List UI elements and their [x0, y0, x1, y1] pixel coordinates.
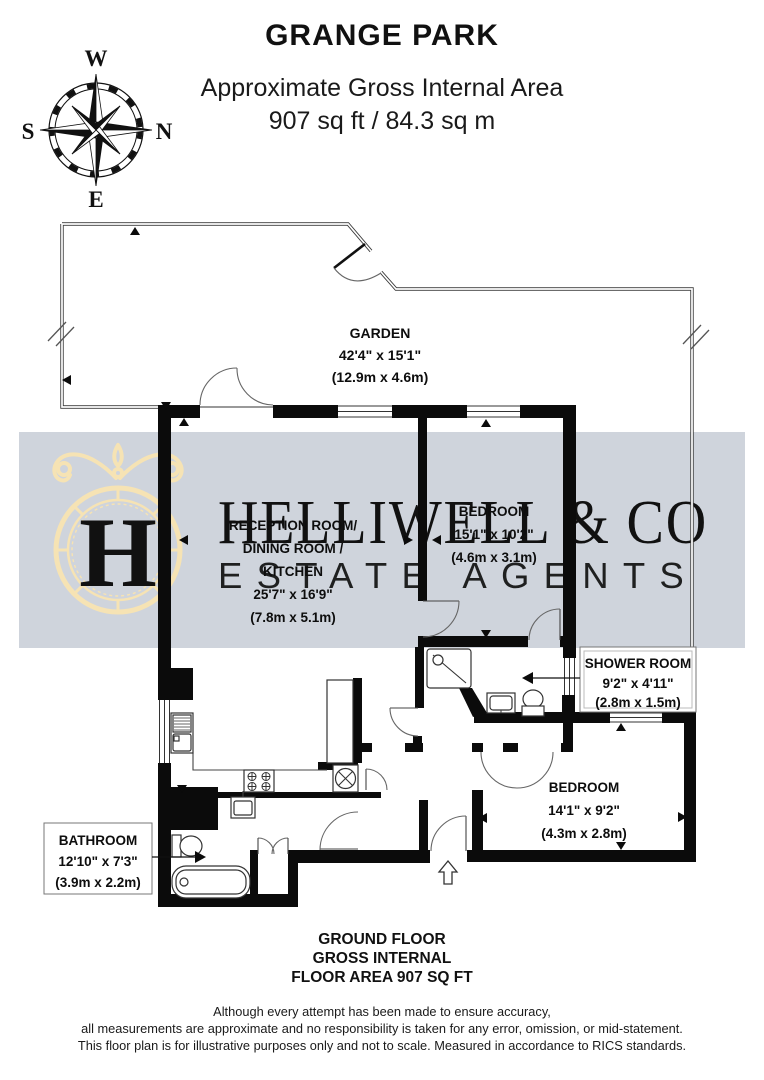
shower-pointer-icon: [522, 672, 533, 684]
subtitle-line2: 907 sq ft / 84.3 sq m: [269, 107, 496, 135]
footer-line3: FLOOR AREA 907 SQ FT: [291, 969, 473, 986]
bedroom1-metric: (4.6m x 3.1m): [451, 550, 537, 565]
footer: GROUND FLOOR GROSS INTERNAL FLOOR AREA 9…: [78, 931, 686, 1053]
bedroom2-imperial: 14'1" x 9'2": [548, 803, 620, 818]
door-icon: [366, 769, 387, 790]
shower-imperial: 9'2" x 4'11": [602, 676, 673, 691]
bedroom2-metric: (4.3m x 2.8m): [541, 826, 627, 841]
compass-rose: W E S N: [22, 46, 173, 212]
disclaimer-line3: This floor plan is for illustrative purp…: [78, 1038, 686, 1053]
subtitle-line1: Approximate Gross Internal Area: [201, 74, 564, 102]
reception-label-2: DINING ROOM /: [243, 541, 344, 556]
reception-imperial: 25'7" x 16'9": [253, 587, 332, 602]
door-icon: [320, 812, 358, 850]
footer-line1: GROUND FLOOR: [318, 931, 445, 948]
door-icon: [390, 708, 418, 736]
french-door-icon: [200, 368, 273, 405]
window-icon: [338, 405, 392, 418]
closet-doors-icon: [258, 838, 288, 854]
compass-east: E: [88, 187, 103, 212]
hob-icon: [244, 770, 274, 792]
disclaimer-line2: all measurements are approximate and no …: [81, 1021, 683, 1036]
floorplan-page: H HELLIWELL & CO ESTATE AGENTS: [0, 0, 764, 1080]
garden-metric: (12.9m x 4.6m): [332, 369, 429, 385]
bedroom2-label: BEDROOM: [549, 780, 620, 795]
shower-tray-icon: [427, 649, 471, 688]
garden-label: GARDEN: [350, 325, 411, 341]
bathroom-imperial: 12'10" x 7'3": [58, 854, 137, 869]
garden-imperial: 42'4" x 15'1": [339, 347, 421, 363]
washing-machine-icon: [333, 765, 358, 792]
shower-label: SHOWER ROOM: [585, 656, 692, 671]
toilet-icon: [522, 690, 544, 716]
disclaimer-line1: Although every attempt has been made to …: [213, 1004, 551, 1019]
door-icon: [481, 752, 553, 788]
front-door-icon: [431, 816, 466, 851]
basin-icon: [487, 693, 515, 713]
compass-north: N: [156, 119, 173, 144]
window-icon: [563, 658, 576, 695]
compass-west: W: [85, 46, 108, 71]
entrance-arrow-icon: [439, 861, 457, 884]
kitchen-counter-icon: [193, 753, 327, 770]
footer-line2: GROSS INTERNAL: [313, 950, 452, 967]
window-icon: [158, 700, 171, 763]
reception-metric: (7.8m x 5.1m): [250, 610, 336, 625]
bedroom1-imperial: 15'1" x 10'2": [454, 527, 533, 542]
tall-cupboard-icon: [327, 680, 353, 763]
bathroom-metric: (3.9m x 2.2m): [55, 875, 141, 890]
bathroom-label: BATHROOM: [59, 833, 138, 848]
bathtub-icon: [172, 866, 250, 898]
logo-monogram: H: [79, 497, 157, 608]
bedroom1-label: BEDROOM: [459, 504, 530, 519]
garden-gate-icon: [334, 244, 381, 281]
kitchen-sink-icon: [171, 713, 193, 753]
reception-label-1: RECEPTION ROOM/: [229, 518, 358, 533]
shower-metric: (2.8m x 1.5m): [595, 695, 681, 710]
bathroom-pointer-icon: [195, 851, 206, 863]
page-title: GRANGE PARK: [265, 19, 499, 52]
reception-label-3: KITCHEN: [263, 564, 323, 579]
header: GRANGE PARK Approximate Gross Internal A…: [201, 19, 564, 135]
window-icon: [467, 405, 520, 418]
compass-south: S: [22, 119, 35, 144]
floorplan-drawing: H HELLIWELL & CO ESTATE AGENTS: [0, 0, 764, 1080]
window-icon: [610, 712, 662, 723]
